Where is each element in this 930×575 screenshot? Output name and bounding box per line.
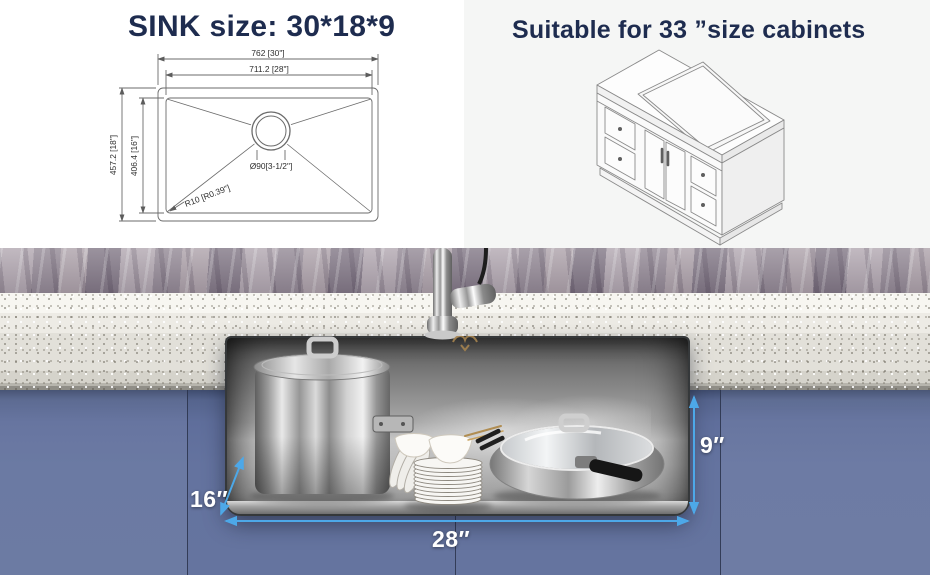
- dim-drain: Ø90[3-1/2"]: [250, 161, 293, 171]
- height-dimension-label: 9″: [700, 432, 725, 459]
- cabinet-panel: Suitable for 33 ”size cabinets: [464, 0, 930, 248]
- dim-inner-depth: 406.4 [16"]: [129, 136, 139, 176]
- depth-dimension-label: 16″: [190, 486, 228, 513]
- dim-outer-depth: 457.2 [18"]: [108, 135, 118, 175]
- cabinet-isometric-drawing: [464, 0, 930, 248]
- drawer-knob-icon: [701, 173, 705, 177]
- drawer-knob-icon: [618, 157, 622, 161]
- product-image: SINK size: 30*18*9: [0, 0, 930, 575]
- dim-corner-radius: R10 [R0.39"]: [183, 182, 231, 208]
- sink-spec-panel: SINK size: 30*18*9: [0, 0, 464, 248]
- dim-inner-width: 711.2 [28"]: [249, 64, 289, 74]
- drawer-knob-icon: [701, 203, 705, 207]
- dim-outer-width: 762 [30"]: [251, 48, 284, 58]
- kitchen-photo: 16″ 28″ 9″: [0, 248, 930, 575]
- drawer-knob-icon: [618, 127, 622, 131]
- sink-dimension-drawing: 762 [30"] 711.2 [28"] 457.2 [18"] 406.4 …: [0, 0, 464, 248]
- width-dimension-label: 28″: [432, 526, 470, 553]
